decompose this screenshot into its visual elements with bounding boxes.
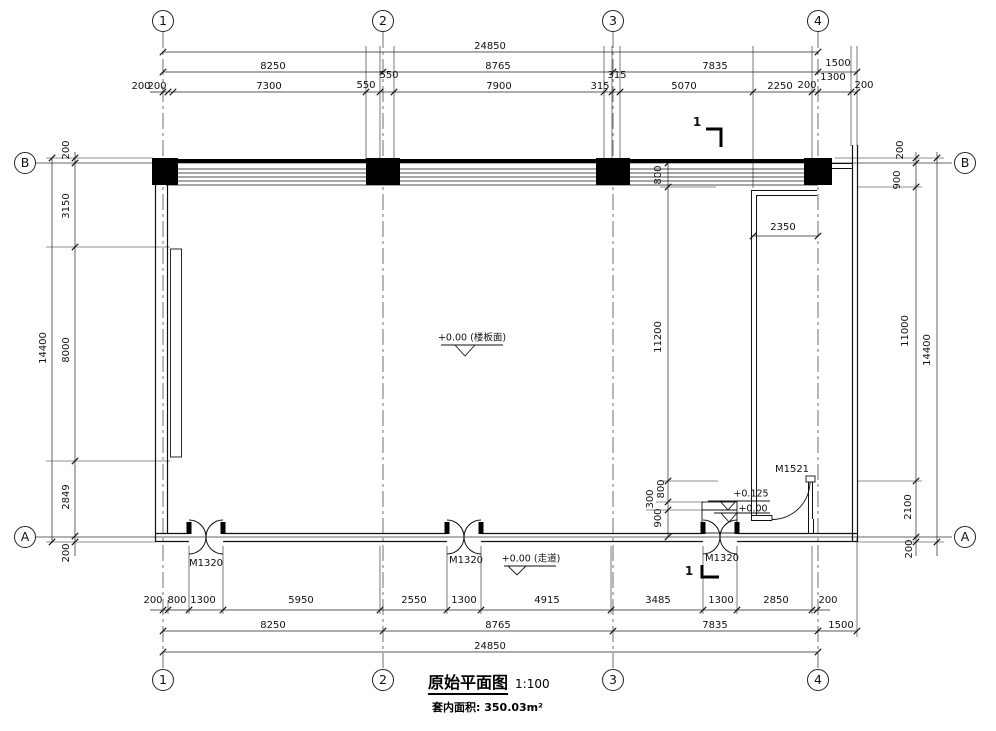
drawing-title: 原始平面图	[428, 673, 508, 695]
top-wall-outer	[153, 159, 831, 163]
doors	[187, 476, 816, 554]
area-note: 套内面积: 350.03m²	[432, 699, 543, 715]
step-platform	[702, 502, 737, 533]
title-block: 原始平面图1:100	[428, 669, 550, 693]
dimension-ticks	[49, 49, 940, 655]
bottom-wall	[155, 534, 858, 542]
dimension-lines	[52, 52, 937, 652]
floor-plan-drawing	[0, 0, 996, 731]
door-m1521	[772, 476, 815, 520]
floor-plan-sheet: 2485082508765783515001300200200730055055…	[0, 0, 996, 731]
walls	[153, 145, 858, 542]
pilaster	[171, 249, 182, 457]
drawing-scale: 1:100	[515, 677, 550, 691]
